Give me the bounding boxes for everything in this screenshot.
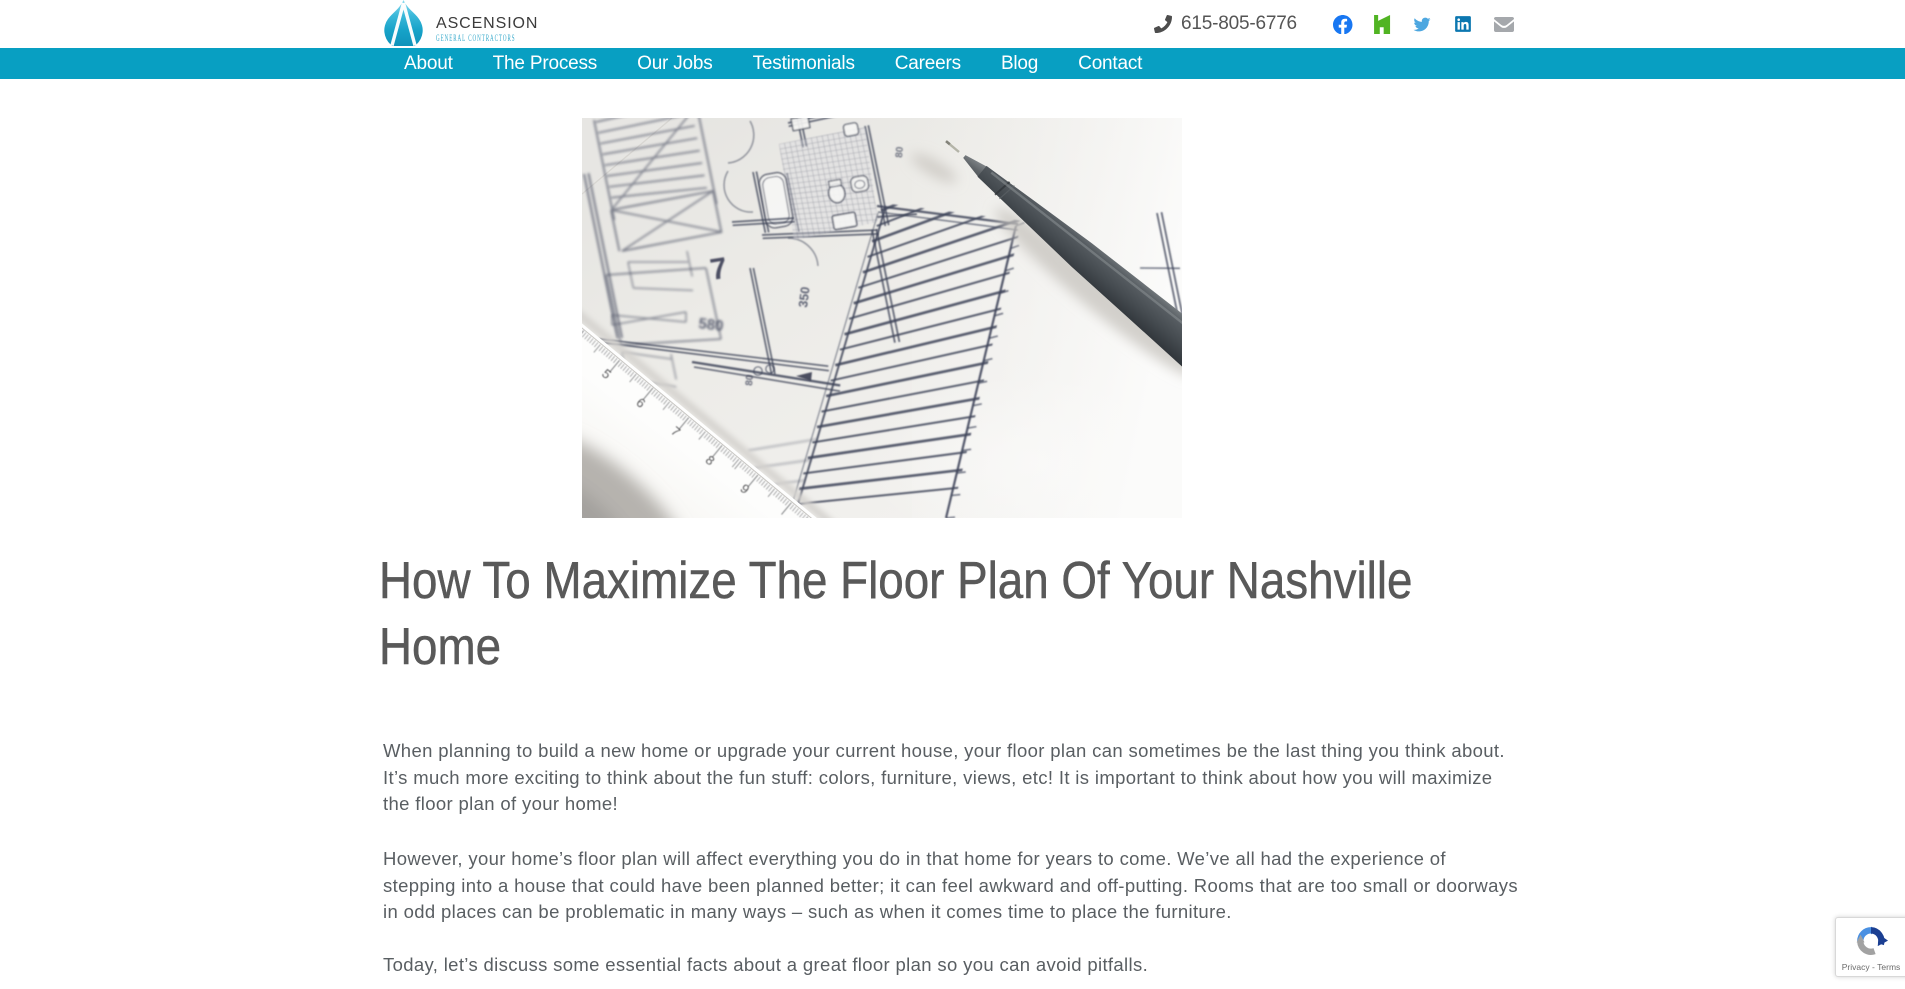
svg-text:80: 80 [894, 146, 906, 158]
svg-text:350: 350 [796, 286, 812, 308]
